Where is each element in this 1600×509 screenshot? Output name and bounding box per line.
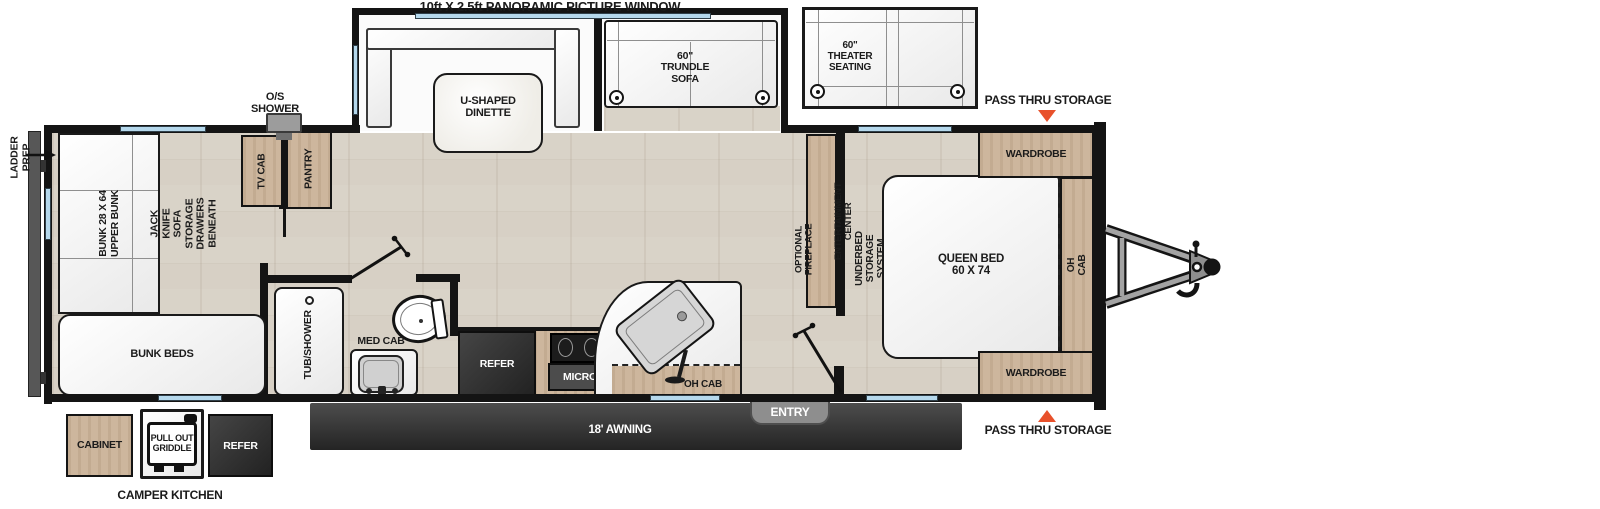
panoramic-window-label: 10ft X 2.5ft PANORAMIC PICTURE WINDOW <box>355 0 745 14</box>
entertainment-center-label-wrap: ENTERTAINMENT CENTER <box>806 134 837 308</box>
griddle-foot-left <box>154 466 164 472</box>
ladder-prep-label: LADDER PREP <box>10 137 33 179</box>
camper-refer-label: REFER <box>223 440 258 452</box>
u-dinette-label: U-SHAPED DINETTE <box>437 96 539 120</box>
camper-kitchen-refer: REFER <box>208 414 273 477</box>
slide-divider-wall <box>594 13 602 131</box>
micro-label: MICRO <box>563 371 597 383</box>
tv-swing-arm <box>283 207 286 237</box>
slide-side-window <box>353 45 358 115</box>
optional-fireplace-label: OPTIONAL FIREPLACE <box>794 223 815 275</box>
sofa-recliner-right-icon <box>755 90 770 105</box>
refrigerator: REFER <box>458 331 536 396</box>
bunk-beds-label: BUNK BEDS <box>130 349 193 361</box>
slide-wall-right <box>781 8 788 131</box>
sofa-recliner-left-icon <box>609 90 624 105</box>
griddle-body: PULL OUT GRIDDLE <box>147 422 197 466</box>
bath-wall-top <box>260 275 352 283</box>
upper-bunk-label-wrap: BUNK 28 X 64 UPPER BUNK <box>58 133 160 314</box>
bath-wall-right-v <box>450 274 458 336</box>
kitchen-oh-cab-label: OH CAB <box>672 380 734 391</box>
camper-kitchen-label: CAMPER KITCHEN <box>92 489 248 502</box>
os-shower-port <box>266 113 302 133</box>
pantry-label: PANTRY <box>303 149 315 190</box>
wardrobe-bottom-label: WARDROBE <box>1006 368 1066 379</box>
window-top-left <box>120 126 206 132</box>
stove-burner-left-icon <box>558 338 573 357</box>
camper-kitchen-cabinet: CABINET <box>66 414 133 477</box>
bedroom-oh-cab-label: OH CAB <box>1066 248 1088 282</box>
window-kitchen-bottom <box>650 395 720 401</box>
tv-cab-label: TV CAB <box>256 153 267 189</box>
bunk-beds: BUNK BEDS <box>58 314 266 396</box>
floorplan-canvas: 60" TRUNDLE SOFA U-SHAPED DINETTE 10ft X… <box>0 0 1600 509</box>
bath-sink-basin <box>363 360 399 388</box>
wardrobe-bottom: WARDROBE <box>978 351 1094 396</box>
underbed-storage-label-wrap: UNDERBED STORAGE SYSTEM <box>843 158 868 358</box>
pantry-label-wrap: PANTRY <box>286 129 332 209</box>
wardrobe-top-label: WARDROBE <box>1006 149 1066 160</box>
kitchen-oh-cab-dashed-line <box>612 364 740 366</box>
ladder-prep-label-wrap: LADDER PREP <box>0 120 26 196</box>
theater-center-seam-2 <box>898 10 899 106</box>
wardrobe-top: WARDROBE <box>978 131 1094 178</box>
pass-thru-storage-top-label: PASS THRU STORAGE <box>980 94 1116 107</box>
tub-shower-label: TUB/SHOWER <box>303 310 315 379</box>
pass-thru-storage-bottom-label: PASS THRU STORAGE <box>980 424 1116 437</box>
window-bedroom-top <box>858 126 952 132</box>
bedroom-door-stub-wall <box>834 366 844 396</box>
os-shower-port-stub <box>276 133 292 140</box>
awning-label: 18' AWNING <box>555 424 685 436</box>
optional-fireplace-label-wrap: OPTIONAL FIREPLACE <box>779 203 805 295</box>
window-bedroom-bottom <box>866 395 938 401</box>
sofa-floor-patch <box>604 106 780 131</box>
jack-knife-sofa-label: JACK KNIFE SOFA STORAGE DRAWERS BENEATH <box>149 198 218 250</box>
entry-label: ENTRY <box>771 406 810 419</box>
queen-bed-label: QUEEN BED 60 X 74 <box>902 253 1040 278</box>
wall-front <box>1094 122 1106 410</box>
pull-out-griddle-label: PULL OUT GRIDDLE <box>151 434 194 453</box>
trundle-sofa-label: 60" TRUNDLE SOFA <box>633 51 737 85</box>
pass-thru-bottom-arrow-icon <box>1038 410 1056 422</box>
entry-door: ENTRY <box>750 402 830 425</box>
refer-label: REFER <box>480 358 515 370</box>
ladder-mount-top <box>41 160 46 172</box>
tub-shower-label-wrap: TUB/SHOWER <box>274 293 344 396</box>
pass-thru-top-arrow-icon <box>1038 110 1056 122</box>
griddle-foot-right <box>174 466 184 472</box>
dinette-bench-right <box>554 28 580 128</box>
dinette-bench-back <box>366 28 580 50</box>
theater-seating-label: 60" THEATER SEATING <box>810 41 890 73</box>
theater-seat-seam <box>818 86 962 87</box>
theater-back-seam <box>806 22 974 23</box>
toilet-flush-icon <box>419 319 423 323</box>
tv-cab-label-wrap: TV CAB <box>241 135 283 207</box>
window-bunk-bottom <box>158 395 222 401</box>
cabinet-label: CABINET <box>77 440 122 451</box>
ladder-mount-bottom <box>41 372 46 384</box>
hitch-aframe-icon <box>1106 229 1221 304</box>
upper-bunk-label: BUNK 28 X 64 UPPER BUNK <box>97 190 120 257</box>
med-cab-label: MED CAB <box>348 336 414 347</box>
jack-knife-sofa-label-wrap: JACK KNIFE SOFA STORAGE DRAWERS BENEATH <box>158 133 204 314</box>
sofa-back-seam <box>607 40 775 41</box>
bedroom-oh-cab-label-wrap: OH CAB <box>1060 177 1094 353</box>
theater-recliner-left-icon <box>810 84 825 99</box>
theater-recliner-right-icon <box>950 84 965 99</box>
window-rear <box>45 188 51 240</box>
